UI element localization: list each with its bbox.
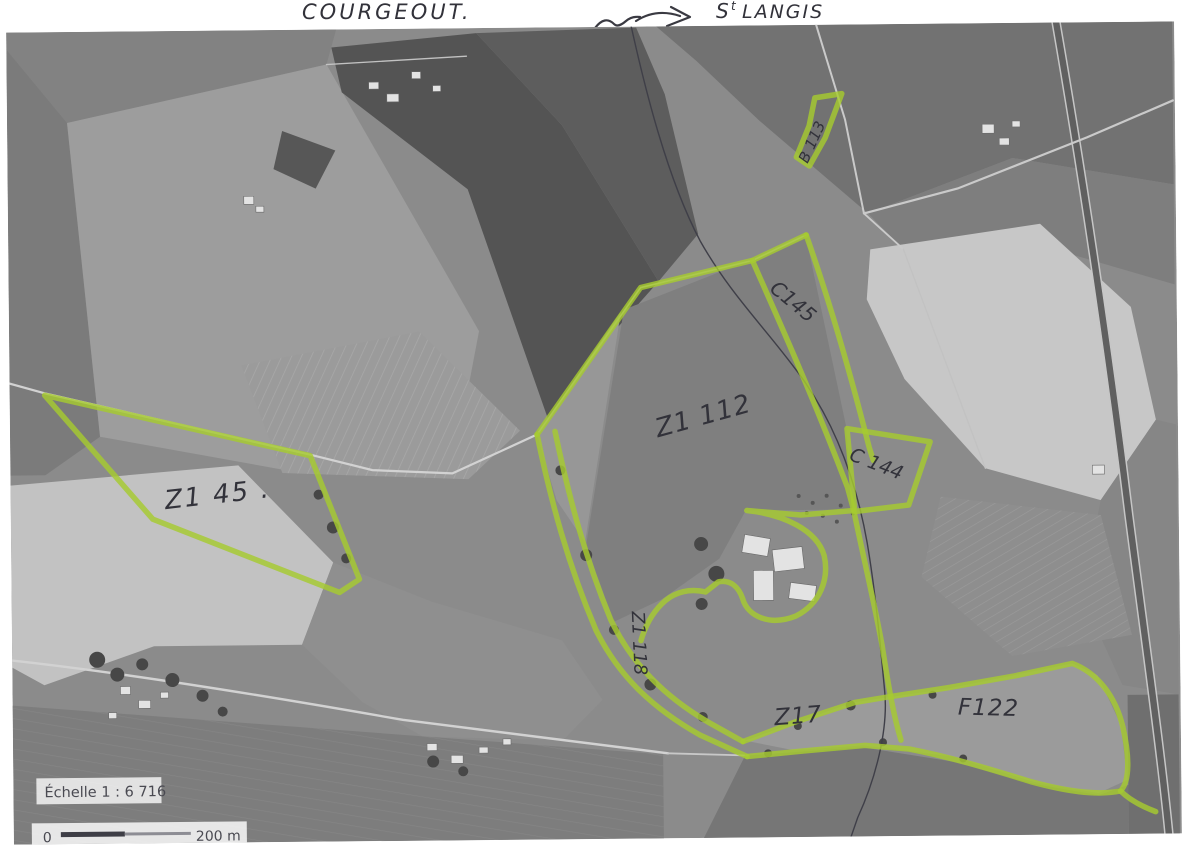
place-label-stlangis-superscript: t: [731, 0, 737, 13]
aerial-photo: Z1 45 . Z1 112 C145 C 144 Z1 118 Z17 F12…: [6, 6, 1182, 851]
scale-bar-dark-segment: [61, 832, 125, 838]
scale-label: Échelle 1 : 6 716: [44, 783, 166, 801]
scale-bar-start-label: 0: [43, 830, 52, 846]
scale-bar-end-label: 200 m: [196, 828, 241, 844]
parcel-label-f122: F122: [958, 695, 1020, 723]
scanned-map-page: COURGEOUT. S t LANGIS: [0, 0, 1200, 851]
parcel-label-z1-118: Z1 118: [627, 610, 651, 676]
scale-panel: Échelle 1 : 6 716: [36, 777, 166, 804]
squiggle-route-arrow-icon: [595, 7, 690, 28]
place-label-stlangis-rest: LANGIS: [742, 1, 824, 23]
margin-annotations: COURGEOUT. S t LANGIS: [302, 0, 824, 28]
place-label-courgeout: COURGEOUT.: [302, 0, 472, 24]
place-label-stlangis-initial: S: [716, 0, 730, 23]
aerial-photo-scan: COURGEOUT. S t LANGIS: [0, 0, 1200, 851]
parcel-label-z17: Z17: [772, 702, 823, 732]
scale-bar-light-segment: [125, 832, 191, 836]
scale-bar: 0 200 m: [32, 821, 247, 849]
